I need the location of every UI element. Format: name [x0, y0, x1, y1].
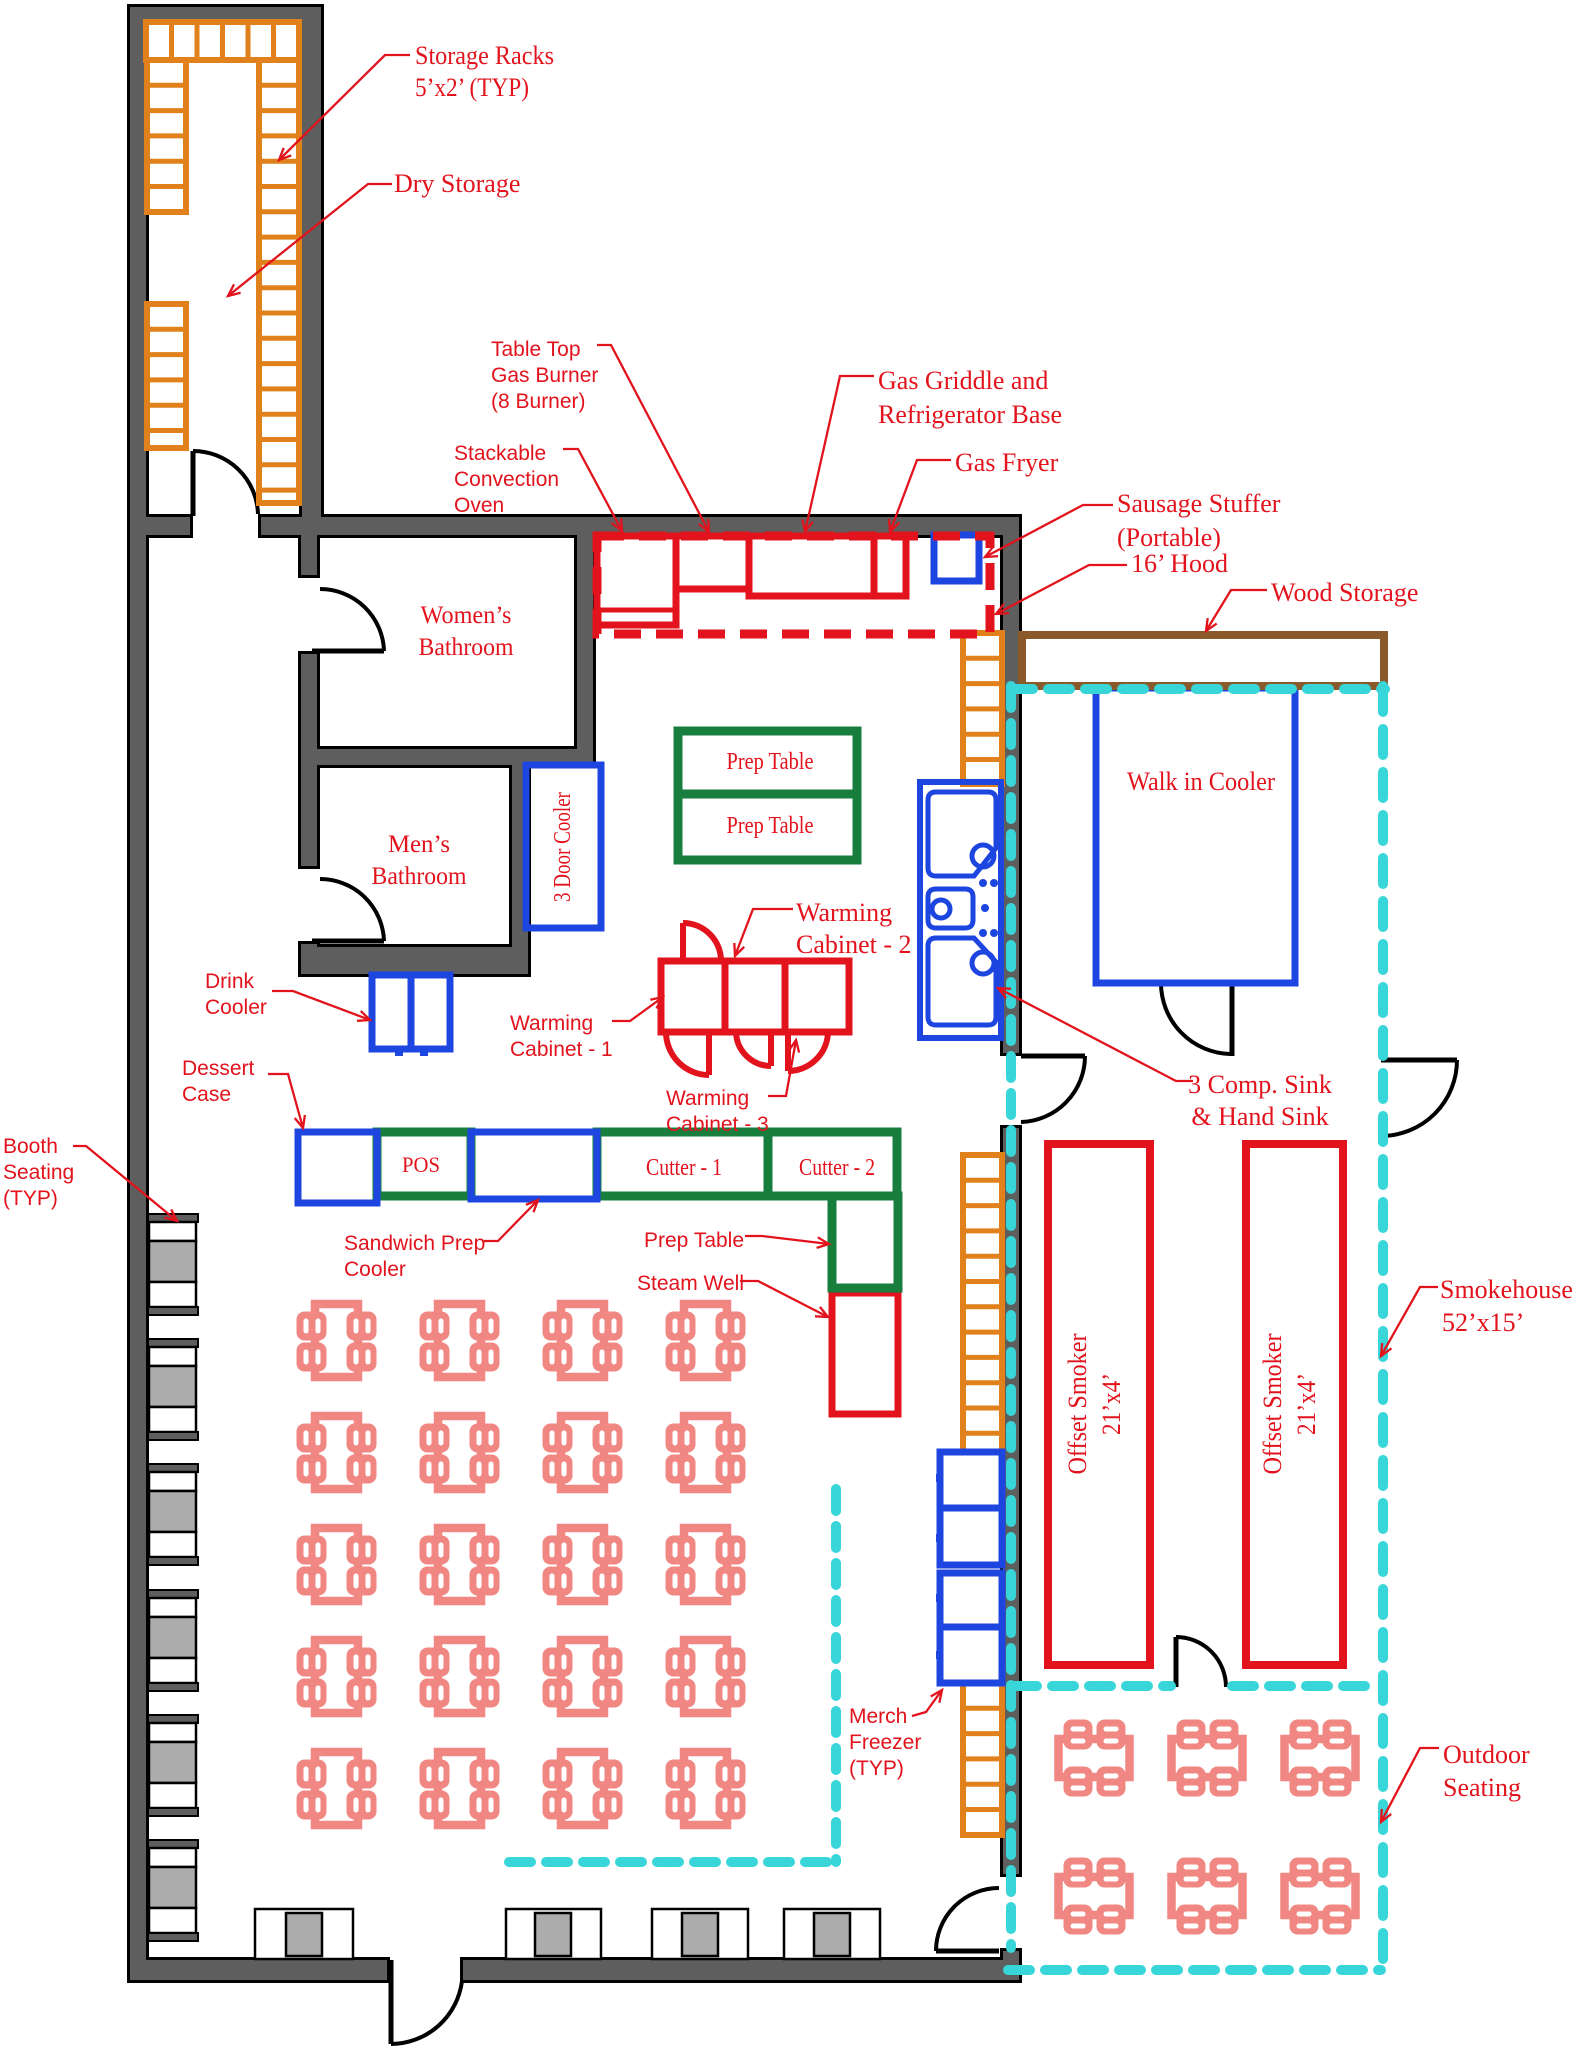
svg-text:3 Door Cooler: 3 Door Cooler	[550, 792, 576, 902]
svg-text:Prep Table: Prep Table	[727, 749, 814, 775]
svg-text:3 Comp. Sink: 3 Comp. Sink	[1188, 1070, 1332, 1099]
svg-text:21’x4’: 21’x4’	[1097, 1373, 1126, 1435]
svg-text:Cabinet - 2: Cabinet - 2	[796, 930, 912, 959]
svg-text:Wood Storage: Wood Storage	[1271, 578, 1418, 607]
svg-text:Outdoor: Outdoor	[1443, 1740, 1530, 1769]
svg-text:16’ Hood: 16’ Hood	[1131, 549, 1228, 578]
svg-text:Dry Storage: Dry Storage	[394, 169, 520, 198]
svg-text:Drink: Drink	[205, 970, 255, 993]
svg-text:Cooler: Cooler	[205, 996, 267, 1019]
svg-text:5’x2’ (TYP): 5’x2’ (TYP)	[415, 73, 529, 102]
svg-text:Cutter - 2: Cutter - 2	[799, 1155, 875, 1181]
svg-text:(TYP): (TYP)	[849, 1757, 904, 1780]
svg-text:Cooler: Cooler	[344, 1258, 406, 1281]
svg-text:Walk in Cooler: Walk in Cooler	[1127, 767, 1275, 796]
svg-text:Booth: Booth	[3, 1135, 58, 1158]
svg-text:Oven: Oven	[454, 494, 504, 517]
svg-text:Merch: Merch	[849, 1705, 907, 1728]
svg-text:Warming: Warming	[796, 898, 892, 927]
svg-text:& Hand Sink: & Hand Sink	[1191, 1102, 1328, 1131]
svg-text:Offset Smoker: Offset Smoker	[1258, 1333, 1287, 1474]
svg-text:Convection: Convection	[454, 468, 559, 491]
svg-text:Sausage Stuffer: Sausage Stuffer	[1117, 489, 1281, 518]
svg-text:Prep Table: Prep Table	[644, 1229, 744, 1252]
svg-text:Bathroom: Bathroom	[372, 863, 468, 890]
svg-text:Sandwich Prep: Sandwich Prep	[344, 1232, 485, 1255]
svg-text:Seating: Seating	[1443, 1773, 1521, 1802]
svg-text:Warming: Warming	[666, 1087, 749, 1110]
svg-text:Men’s: Men’s	[388, 831, 450, 858]
svg-text:Gas Fryer: Gas Fryer	[955, 448, 1059, 477]
svg-text:Bathroom: Bathroom	[419, 634, 515, 661]
svg-text:Offset Smoker: Offset Smoker	[1063, 1333, 1092, 1474]
svg-text:(8 Burner): (8 Burner)	[491, 390, 586, 413]
svg-text:Cabinet - 1: Cabinet - 1	[510, 1038, 613, 1061]
svg-text:52’x15’: 52’x15’	[1442, 1308, 1524, 1337]
svg-text:Cabinet - 3: Cabinet - 3	[666, 1113, 769, 1136]
svg-text:Storage Racks: Storage Racks	[415, 41, 554, 70]
svg-text:Freezer: Freezer	[849, 1731, 921, 1754]
svg-text:21’x4’: 21’x4’	[1292, 1373, 1321, 1435]
svg-text:Table Top: Table Top	[491, 338, 581, 361]
svg-text:Dessert: Dessert	[182, 1057, 255, 1080]
svg-text:Refrigerator Base: Refrigerator Base	[878, 400, 1062, 429]
svg-text:Gas Griddle and: Gas Griddle and	[878, 366, 1048, 395]
svg-text:(TYP): (TYP)	[3, 1187, 58, 1210]
svg-text:Steam Well: Steam Well	[637, 1272, 744, 1295]
svg-text:Warming: Warming	[510, 1012, 593, 1035]
svg-text:POS: POS	[402, 1152, 440, 1177]
svg-text:Seating: Seating	[3, 1161, 74, 1184]
svg-text:Gas Burner: Gas Burner	[491, 364, 598, 387]
svg-text:Case: Case	[182, 1083, 231, 1106]
svg-text:Smokehouse: Smokehouse	[1440, 1275, 1572, 1304]
svg-text:Cutter - 1: Cutter - 1	[646, 1155, 722, 1181]
svg-text:Prep Table: Prep Table	[727, 813, 814, 839]
svg-text:(Portable): (Portable)	[1117, 523, 1221, 552]
svg-text:Women’s: Women’s	[421, 602, 512, 629]
svg-text:Stackable: Stackable	[454, 442, 546, 465]
